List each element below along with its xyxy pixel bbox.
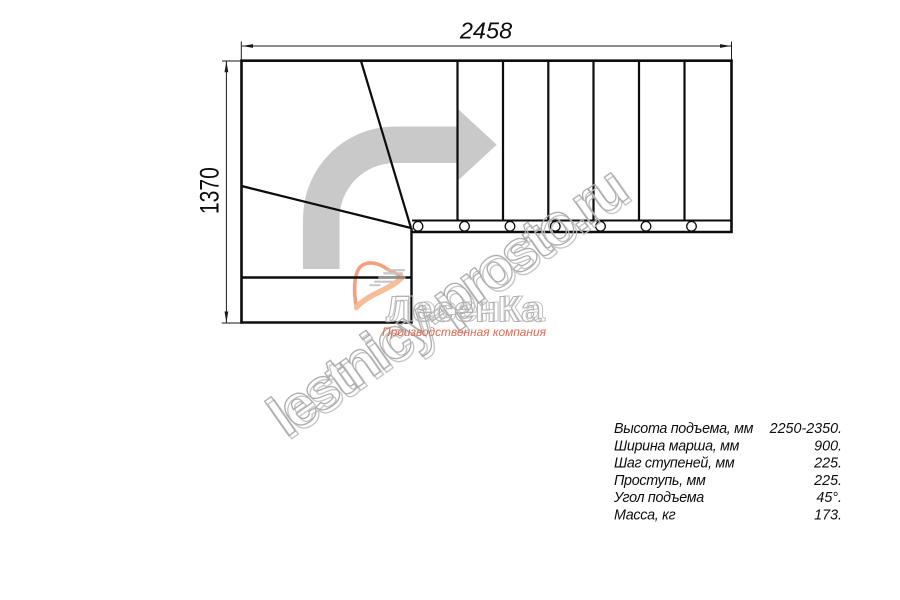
svg-text:Ширина марша, мм: Ширина марша, мм [614,438,740,454]
svg-text:173.: 173. [814,508,842,524]
svg-text:Угол подъема: Угол подъема [613,490,704,506]
svg-text:Высота подъема, мм: Высота подъема, мм [614,421,754,437]
svg-text:900.: 900. [814,438,842,454]
svg-text:2458: 2458 [459,18,512,44]
svg-text:Масса, кг: Масса, кг [614,508,676,524]
svg-text:225.: 225. [813,456,842,472]
svg-text:Проступь, мм: Проступь, мм [614,473,706,489]
svg-text:Производственная компания: Производственная компания [382,325,547,339]
svg-text:225.: 225. [813,473,842,489]
svg-text:1370: 1370 [194,167,224,214]
svg-text:45°.: 45°. [816,490,842,506]
svg-text:Шаг ступеней, мм: Шаг ступеней, мм [614,456,735,472]
svg-text:2250-2350.: 2250-2350. [769,421,842,437]
svg-text:ЛесенКа: ЛесенКа [386,289,542,330]
